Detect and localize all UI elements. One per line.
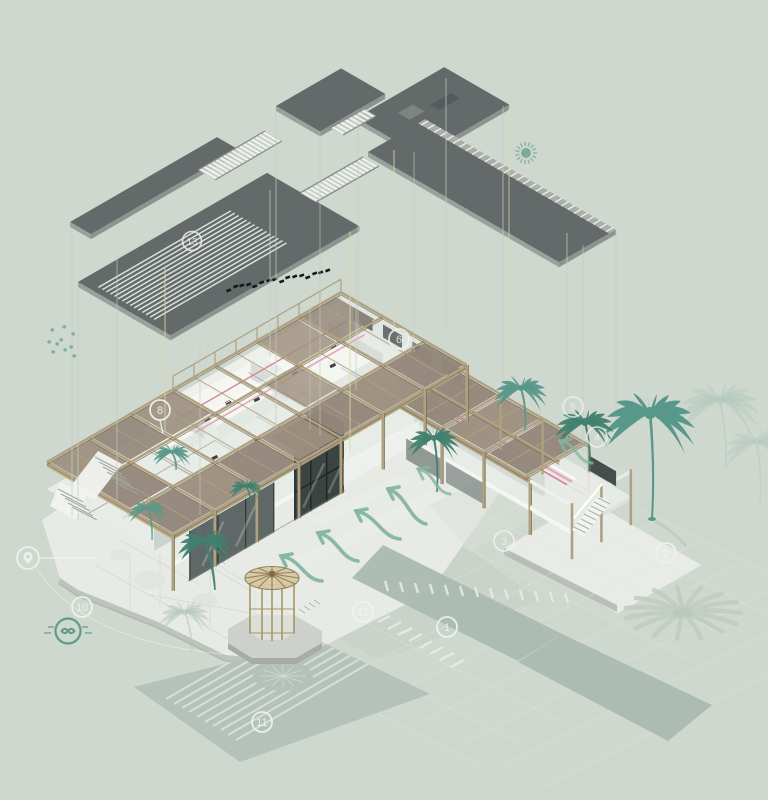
svg-text:6: 6 xyxy=(396,334,402,346)
svg-text:1: 1 xyxy=(444,622,450,634)
svg-text:10: 10 xyxy=(76,602,88,614)
svg-text:8: 8 xyxy=(157,405,163,417)
svg-text:13: 13 xyxy=(186,237,198,248)
svg-text:5: 5 xyxy=(570,402,576,414)
svg-text:11: 11 xyxy=(256,717,267,729)
svg-text:3: 3 xyxy=(501,536,507,548)
svg-text:2: 2 xyxy=(663,548,669,560)
svg-text:12: 12 xyxy=(357,607,369,619)
svg-text:4: 4 xyxy=(594,432,600,444)
